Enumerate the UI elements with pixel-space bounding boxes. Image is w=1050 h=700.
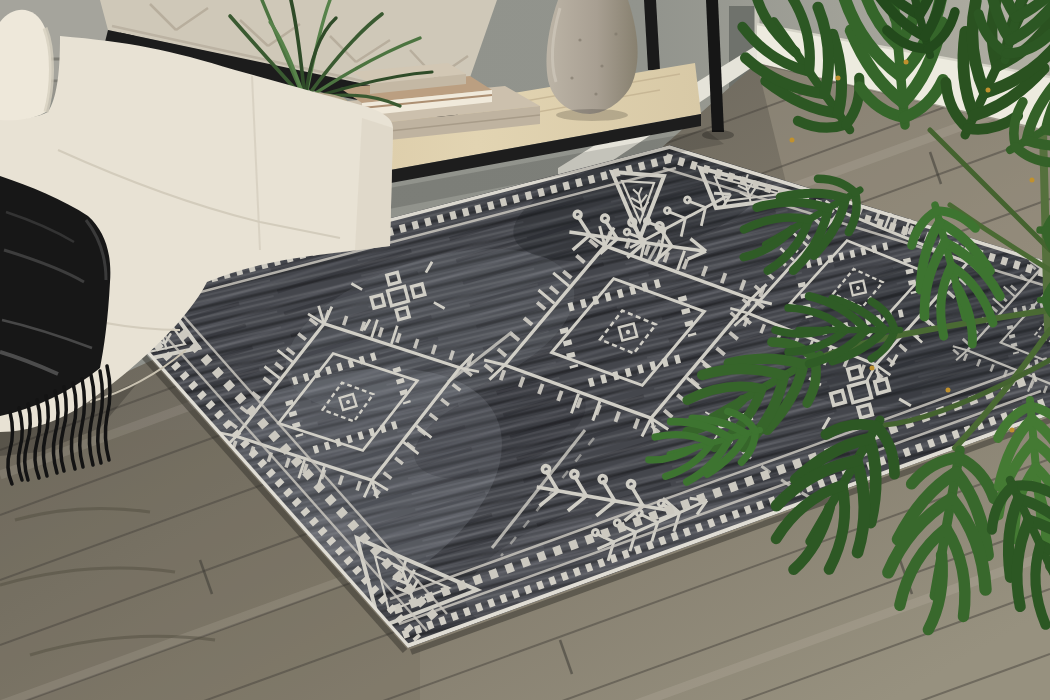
- sofa-arm-roll: [0, 10, 52, 120]
- living-room-photo: Living room with dark gray tribal-patter…: [0, 0, 1050, 700]
- leg-shadow: [702, 130, 734, 140]
- vase-shadow: [556, 109, 628, 121]
